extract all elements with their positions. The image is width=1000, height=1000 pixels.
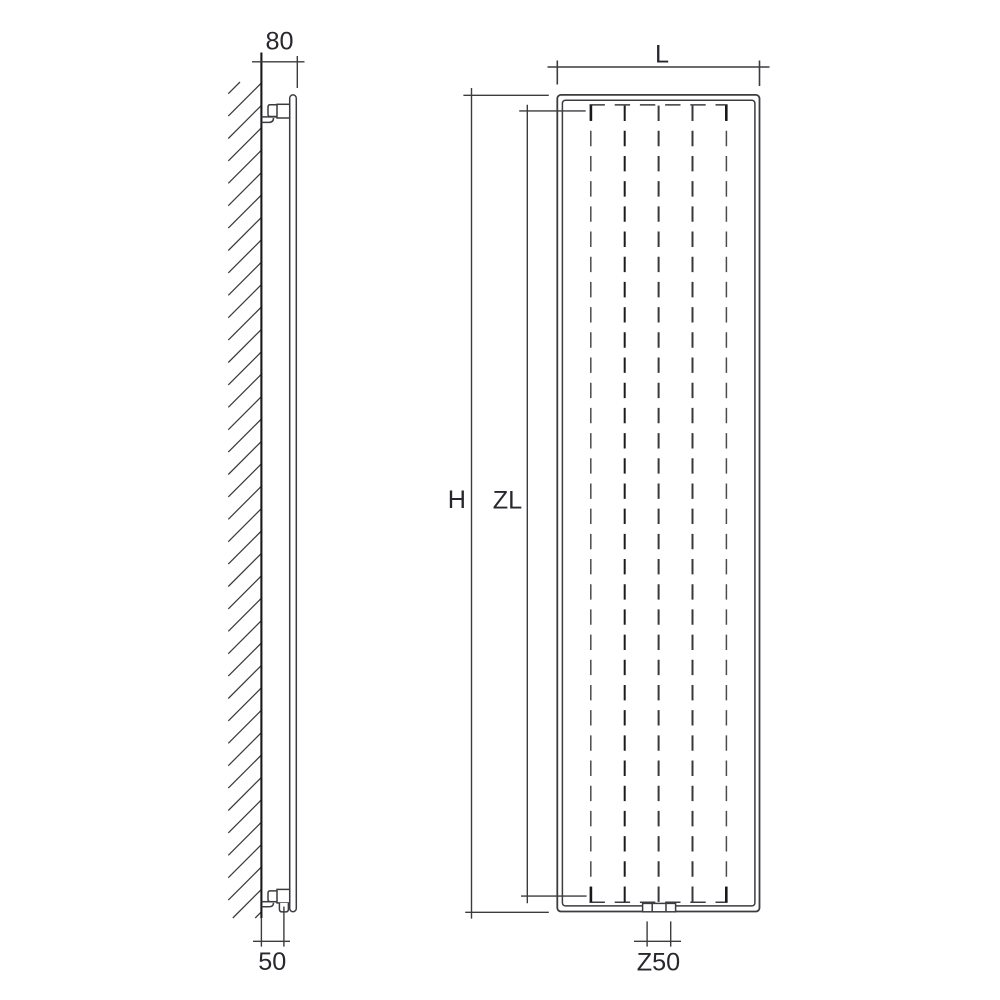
svg-text:ZL: ZL bbox=[493, 487, 522, 515]
svg-text:Z50: Z50 bbox=[637, 949, 680, 977]
svg-text:80: 80 bbox=[265, 28, 293, 56]
svg-text:L: L bbox=[655, 41, 669, 69]
svg-text:H: H bbox=[448, 486, 466, 514]
svg-text:50: 50 bbox=[258, 948, 286, 976]
